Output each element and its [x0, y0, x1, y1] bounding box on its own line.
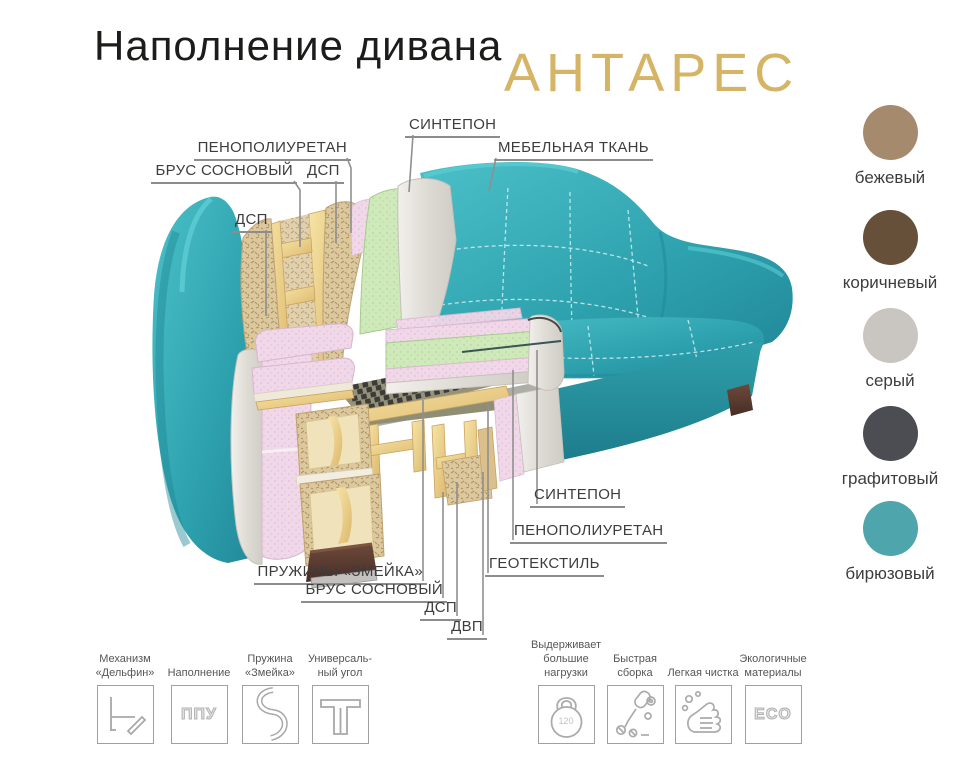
infographic-page: Наполнение дивана АНТАРЕС СИНТЕПОН МЕБЕЛ…	[0, 0, 958, 774]
assembly-icon	[608, 686, 663, 743]
feature-label: Экологичные материалы	[739, 652, 806, 680]
material-label-dsp-top: ДСП	[303, 162, 344, 184]
material-label-sintepon-bottom: СИНТЕПОН	[530, 486, 625, 508]
color-swatch-graphite: графитовый	[829, 406, 951, 489]
feature-label: Механизм «Дельфин»	[96, 652, 155, 680]
material-label-dvp-bottom: ДВП	[447, 618, 487, 640]
feature-label: Выдерживает большие нагрузки	[531, 638, 601, 680]
material-label-penopoliuretan-top: ПЕНОПОЛИУРЕТАН	[194, 139, 351, 161]
swatch-label: серый	[829, 371, 951, 391]
material-label-penopoliuretan-bottom: ПЕНОПОЛИУРЕТАН	[510, 522, 667, 544]
beige-color-dot	[863, 105, 918, 160]
material-label-dsp-left: ДСП	[231, 211, 272, 233]
feature-dolphin-mechanism: Механизм «Дельфин»	[87, 648, 163, 744]
material-label-geotextile: ГЕОТЕКСТИЛЬ	[485, 555, 604, 577]
gray-color-dot	[863, 308, 918, 363]
color-swatch-turquoise: бирюзовый	[829, 501, 951, 584]
material-label-brus-sosnovy-top: БРУС СОСНОВЫЙ	[151, 162, 297, 184]
swatch-label: графитовый	[829, 469, 951, 489]
dolphin-mechanism-icon	[98, 686, 153, 743]
cleaning-icon	[676, 686, 731, 743]
color-swatch-brown: коричневый	[829, 210, 951, 293]
product-name: АНТАРЕС	[504, 42, 799, 104]
feature-label: Быстрая сборка	[613, 652, 657, 680]
swatch-label: бежевый	[829, 168, 951, 188]
eco-icon: ECO	[754, 706, 792, 724]
material-label-furniture-fabric: МЕБЕЛЬНАЯ ТКАНЬ	[494, 139, 653, 161]
ppu-icon: ППУ	[181, 706, 217, 724]
feature-universal-corner: Универсаль- ный угол	[302, 648, 378, 744]
kettlebell-icon	[539, 686, 594, 743]
feature-high-load: Выдерживает большие нагрузки 120	[528, 648, 604, 744]
color-swatch-gray: серый	[829, 308, 951, 391]
swatch-label: бирюзовый	[829, 564, 951, 584]
page-title: Наполнение дивана	[94, 22, 502, 70]
feature-label: Универсаль- ный угол	[308, 652, 372, 680]
feature-label: Легкая чистка	[667, 666, 738, 680]
feature-label: Пружина «Змейка»	[245, 652, 295, 680]
brown-color-dot	[863, 210, 918, 265]
feature-label: Наполнение	[168, 666, 231, 680]
swatch-label: коричневый	[829, 273, 951, 293]
graphite-color-dot	[863, 406, 918, 461]
snake-spring-icon	[243, 686, 298, 743]
color-swatch-beige: бежевый	[829, 105, 951, 188]
kettlebell-weight: 120	[539, 716, 594, 726]
universal-corner-icon	[313, 686, 368, 743]
feature-eco-materials: Экологичные материалы ECO	[735, 648, 811, 744]
feature-ppu-filling: Наполнение ППУ	[161, 648, 237, 744]
material-label-sintepon-top: СИНТЕПОН	[405, 116, 500, 138]
feature-easy-cleaning: Легкая чистка	[665, 648, 741, 744]
armrest-cutaway	[231, 324, 384, 588]
turquoise-color-dot	[863, 501, 918, 556]
feature-snake-spring: Пружина «Змейка»	[232, 648, 308, 744]
feature-fast-assembly: Быстрая сборка	[597, 648, 673, 744]
